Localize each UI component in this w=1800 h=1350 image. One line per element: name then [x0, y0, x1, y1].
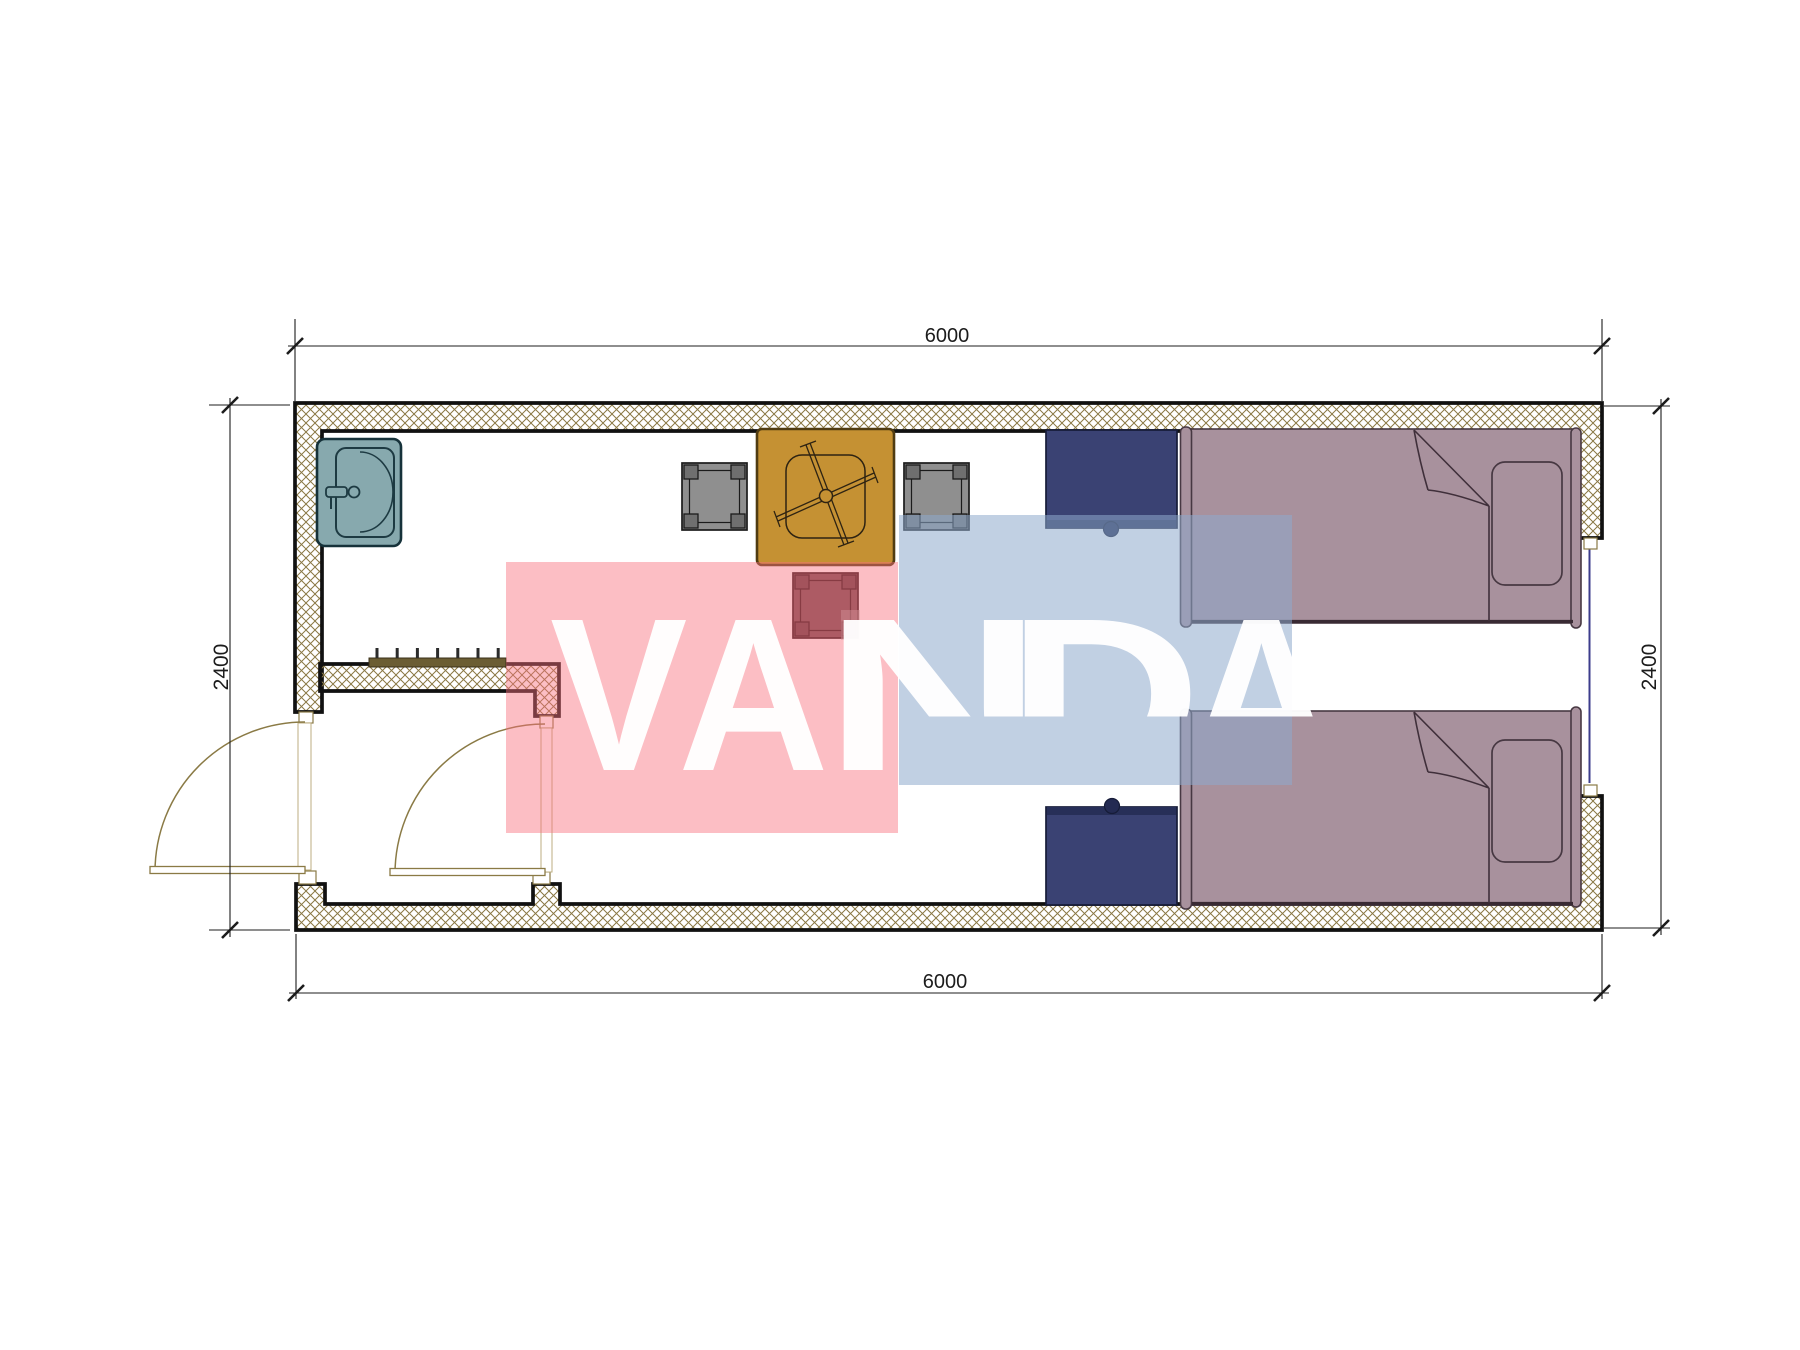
svg-text:V: V	[550, 573, 687, 817]
svg-text:6000: 6000	[925, 325, 970, 347]
svg-text:2400: 2400	[210, 644, 233, 691]
svg-text:A: A	[678, 574, 829, 817]
svg-text:2400: 2400	[1638, 644, 1661, 691]
svg-text:6000: 6000	[923, 971, 968, 993]
